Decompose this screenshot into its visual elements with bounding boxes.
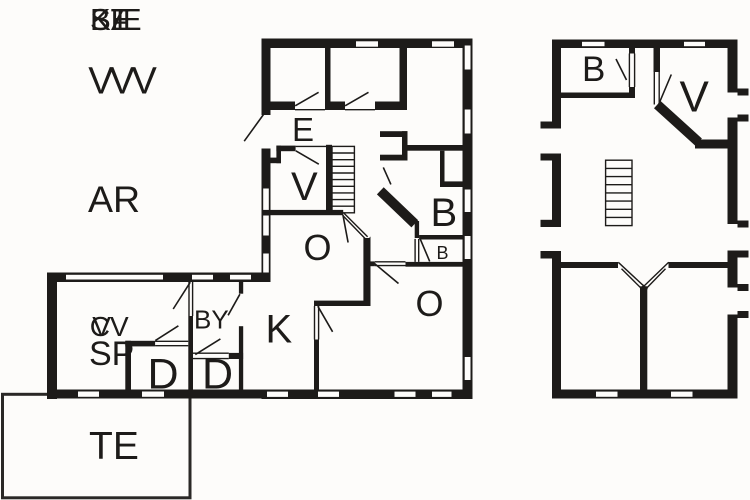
svg-text:D: D — [202, 350, 233, 398]
svg-text:B: B — [437, 243, 449, 263]
svg-text:B: B — [582, 50, 605, 89]
svg-text:O: O — [416, 283, 444, 324]
svg-text:V: V — [291, 165, 318, 209]
svg-text:D: D — [148, 350, 179, 398]
svg-text:SP: SP — [89, 335, 134, 373]
svg-text:TE: TE — [89, 425, 139, 468]
svg-text:V: V — [680, 73, 710, 122]
svg-text:E: E — [292, 111, 314, 148]
svg-text:SE: SE — [90, 2, 131, 37]
svg-text:BY: BY — [194, 305, 229, 335]
svg-text:B: B — [431, 191, 458, 235]
svg-text:V: V — [132, 61, 158, 103]
svg-text:O: O — [304, 227, 332, 268]
svg-text:K: K — [266, 308, 293, 352]
svg-text:AR: AR — [88, 178, 140, 220]
